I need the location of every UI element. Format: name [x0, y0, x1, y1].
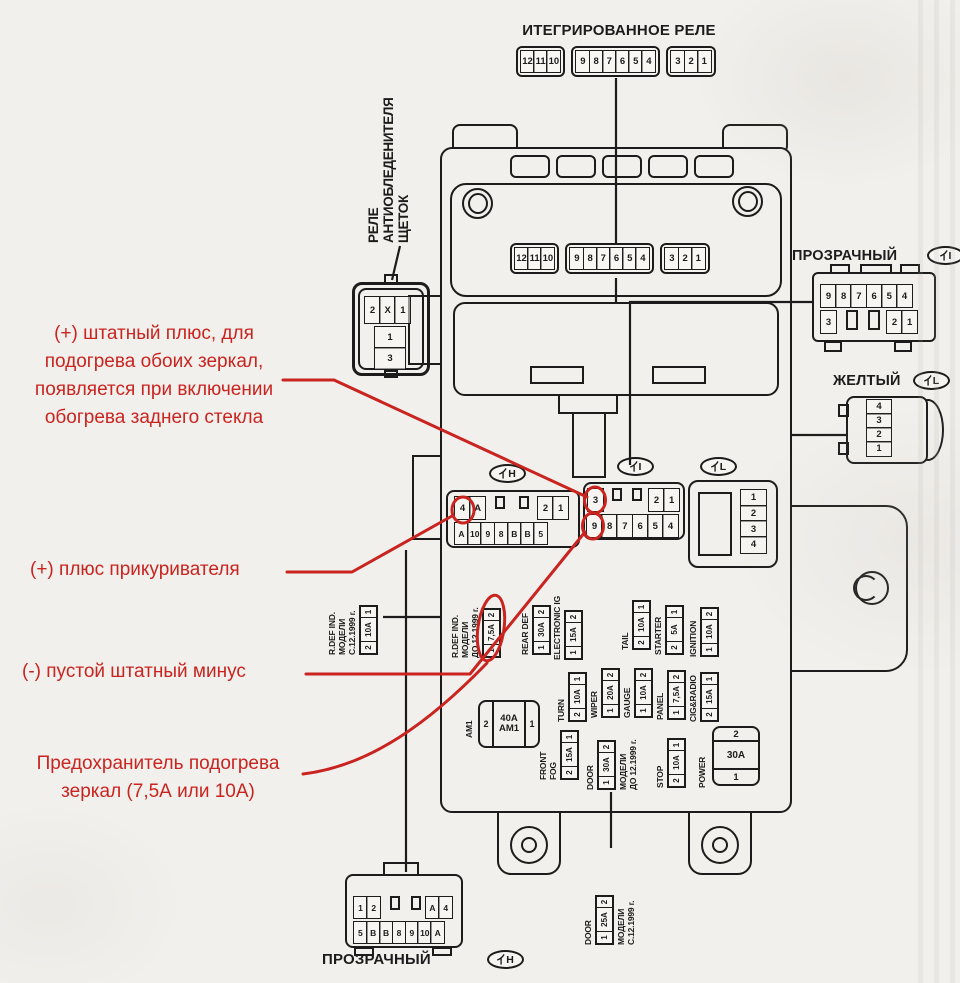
fuse-body: 210A1	[568, 672, 587, 722]
right-clear-foot	[824, 341, 842, 352]
fuse-body: 130A2	[532, 605, 551, 655]
pin-cell: 1	[901, 310, 918, 334]
right-clear-foot	[894, 341, 912, 352]
fuse-door-early: DOOR 130A2 МОДЕЛИ ДО 12.1999 г.	[585, 739, 638, 790]
am1-pin-1: 1	[524, 702, 538, 746]
fuse-cell: 2	[562, 767, 577, 778]
pin-cell: 3	[587, 488, 604, 512]
fuse-cell: 1	[570, 674, 585, 685]
fuse-cell: 2	[534, 607, 549, 618]
tag-letter: L	[933, 375, 939, 387]
fuse-cell: 1	[669, 740, 684, 751]
fuse-cell: 10A	[634, 613, 649, 637]
fuse-cell: 2	[570, 709, 585, 720]
bottom-clear-row2: 5BB8910A	[353, 921, 445, 944]
fuse-cell: 1	[702, 644, 717, 655]
katakana-i-icon	[497, 954, 505, 965]
bottom-clear-keyway	[390, 896, 400, 910]
fuse-body: 25A1	[665, 605, 684, 655]
inner-pin-group: 321	[660, 243, 709, 274]
fuse-label: R.DEF IND. МОДЕЛИ ДО 12.1999 г.	[450, 607, 480, 658]
tag-letter: I	[949, 250, 952, 262]
pin-cell: 1	[691, 247, 706, 270]
fuse-cell: 2	[566, 612, 581, 623]
fuse-cell: 2	[702, 609, 717, 620]
relay-pin-group: 987654	[571, 46, 660, 77]
clear-connector-right-label: ПРОЗРАЧНЫЙ	[792, 248, 897, 264]
ih-row1-right: 21	[537, 496, 569, 520]
right-clear-row1: 987654	[820, 284, 913, 308]
fuse-cell: 1	[566, 647, 581, 658]
am1-rating: 40A AM1	[494, 702, 524, 746]
screw-boss-left-inner	[468, 193, 488, 214]
pin-cell: 4	[662, 514, 679, 538]
top-slot	[556, 155, 596, 178]
pin-cell: 1	[552, 496, 569, 520]
fuse-cell: 1	[669, 707, 684, 718]
fuse-body: 215A1	[560, 730, 579, 780]
fuse-starter: STARTER 25A1	[653, 605, 684, 655]
fuse-cell: 15A	[562, 743, 577, 767]
fuse-label: STOP	[655, 766, 665, 788]
wiper-deicer-relay-label: РЕЛЕ АНТИОБЛЕДЕНИТЕЛЯ ЩЕТОК	[366, 98, 411, 244]
pin-cell: 4	[740, 536, 767, 554]
wiper-relay-tab-bottom	[384, 370, 398, 378]
fuse-cell: 5A	[667, 618, 682, 642]
fuse-note: МОДЕЛИ ДО 12.1999 г.	[618, 739, 638, 790]
fuse-label: IGNITION	[688, 621, 698, 657]
fuse-label: POWER	[697, 757, 707, 788]
ii-row1-left: 3	[587, 488, 604, 512]
pin-cell: 1	[374, 326, 406, 349]
fuse-cell: 10A	[636, 681, 651, 705]
fuse-ignition: IGNITION 110A2	[688, 607, 719, 657]
inner-connector-row: 121110 987654 321	[510, 243, 710, 274]
ii-keyway	[632, 488, 642, 501]
fuse-door-late: DOOR 125A2 МОДЕЛИ C.12.1999 г.	[583, 895, 636, 945]
fuse-label: WIPER	[589, 691, 599, 718]
fuse-cell: 2	[597, 897, 612, 908]
pin-cell: 4	[641, 50, 656, 73]
ih-keyway	[495, 496, 505, 509]
fuse-body: 130A2	[597, 740, 616, 790]
fuse-body: 17,5A2	[482, 608, 501, 658]
fuse-label: TURN	[556, 699, 566, 722]
fuse-cell: 10A	[361, 618, 376, 642]
mount-hole-left-inner	[521, 837, 537, 853]
integrated-relay-label: ИТЕГРИРОВАННОЕ РЕЛЕ	[505, 22, 733, 39]
fuse-body: 110A2	[634, 668, 653, 718]
pin-cell: 1	[394, 296, 411, 324]
bracket-hole-crescent	[853, 575, 879, 601]
pin-cell: 4	[896, 284, 913, 308]
fuse-cell: 30A	[599, 753, 614, 777]
bottom-clear-keyway	[411, 896, 421, 910]
fuse-cell: 1	[361, 607, 376, 618]
fuse-cell: 30A	[534, 618, 549, 642]
pin-cell: 4	[635, 247, 650, 270]
pin-cell: A	[469, 496, 486, 520]
fuse-turn: TURN 210A1	[556, 672, 587, 722]
fuse-label: REAR DEF	[520, 613, 530, 655]
annotation-mirror-heater-fuse: Предохранитель подогрева зеркал (7,5А ил…	[8, 750, 308, 806]
pin-cell: 3	[374, 347, 406, 370]
relay-pin-group: 121110	[516, 46, 565, 77]
pin-cell: 1	[663, 488, 680, 512]
fuse-cell: 2	[669, 672, 684, 683]
tag-letter: H	[508, 468, 516, 480]
fuse-note: МОДЕЛИ C.12.1999 г.	[616, 901, 636, 945]
bottom-clear-label: ПРОЗРАЧНЫЙ	[322, 951, 431, 968]
fuse-cell: 1	[667, 607, 682, 618]
fuse-cell: 15A	[566, 623, 581, 647]
fuse-cell: 2	[669, 775, 684, 786]
fuse-cell: 1	[599, 777, 614, 788]
fuse-label: PANEL	[655, 693, 665, 720]
right-bracket	[790, 505, 908, 672]
wiper-deicer-relay-label-text: РЕЛЕ АНТИОБЛЕДЕНИТЕЛЯ ЩЕТОК	[366, 98, 411, 244]
pin-cell: 2	[366, 896, 381, 919]
katakana-i-icon	[499, 468, 507, 479]
fuse-wiper: WIPER 120A2	[589, 668, 620, 718]
pin-cell: 10	[546, 50, 561, 73]
pin-cell: 4	[438, 896, 453, 919]
power-pin-2: 2	[714, 728, 758, 742]
am1-pin-2: 2	[480, 702, 494, 746]
pin-cell: 5	[533, 522, 548, 545]
left-bracket-lower	[412, 455, 442, 540]
fuse-label: TAIL	[620, 633, 630, 650]
pin-cell: 10	[540, 247, 555, 270]
bottom-clear-foot	[432, 947, 452, 956]
tag-letter: L	[720, 461, 726, 473]
fuse-label: STARTER	[653, 617, 663, 655]
wiper-relay-tab-top	[384, 274, 398, 284]
fuse-cell: 2	[361, 642, 376, 653]
fuse-tail: TAIL 210A1	[620, 600, 651, 650]
fusebox-diagram: ИТЕГРИРОВАННОЕ РЕЛЕ 121110 987654 321 12…	[0, 0, 960, 983]
integrated-relay-connector: 121110 987654 321	[516, 46, 716, 77]
relay-block-bump	[652, 366, 706, 384]
fuse-label: DOOR	[585, 765, 595, 790]
katakana-i-icon	[924, 375, 932, 386]
yellow-tab	[838, 404, 849, 417]
mount-hole-right-inner	[712, 837, 728, 853]
fuse-label: GAUGE	[622, 688, 632, 718]
power-label: POWER	[697, 757, 707, 788]
inner-pin-group: 987654	[565, 243, 654, 274]
tag-bottom-clear: H	[487, 950, 524, 969]
top-slot	[510, 155, 550, 178]
wiper-relay-row1: 2X1	[364, 296, 411, 324]
fuse-cell: 7,5A	[484, 621, 499, 645]
fuse-cell: 1	[597, 932, 612, 943]
fuse-cell: 25A	[597, 908, 612, 932]
ii-row1-right: 21	[648, 488, 680, 512]
il-inner-block	[698, 492, 732, 556]
relay-block-region	[453, 302, 779, 396]
screw-boss-right-inner	[738, 191, 758, 212]
tag-right-clear: I	[927, 246, 960, 265]
pin-cell: 1	[866, 441, 892, 457]
center-tab	[558, 394, 618, 414]
right-clear-keyway	[868, 310, 880, 330]
il-pin-column: 1234	[740, 489, 767, 554]
fuse-electronic-ig: ELECTRONIC IG 115A2	[552, 596, 583, 660]
inner-pin-group: 121110	[510, 243, 559, 274]
pin-cell: 3	[820, 310, 837, 334]
wiper-relay-stack: 13	[374, 326, 406, 370]
tag-il: L	[700, 457, 737, 476]
fuse-label: DOOR	[583, 920, 593, 945]
ih-row2: A1098BB5	[454, 522, 548, 545]
ih-row1-left: 4A	[454, 496, 486, 520]
katakana-i-icon	[711, 461, 719, 472]
annotation-empty-minus: (-) пустой штатный минус	[22, 658, 246, 686]
fuse-stop: STOP 210A1	[655, 738, 686, 788]
fuse-body: 110A2	[700, 607, 719, 657]
top-slot	[694, 155, 734, 178]
yellow-pin-column: 4321	[866, 399, 892, 457]
fuse-cell: 1	[634, 602, 649, 613]
fuse-am1: 2 40A AM1 1	[478, 700, 540, 748]
fuse-front-fog: FRONT FOG 215A1	[538, 730, 579, 780]
fuse-label: CIG&RADIO	[688, 675, 698, 722]
fuse-cell: 1	[636, 705, 651, 716]
fuse-rear-def: REAR DEF 130A2	[520, 605, 551, 655]
fuse-cell: 1	[562, 732, 577, 743]
tag-yellow: L	[913, 371, 950, 390]
fuse-cell: 10A	[570, 685, 585, 709]
fuse-cell: 7,5A	[669, 683, 684, 707]
fuse-cig-radio: CIG&RADIO 215A1	[688, 672, 719, 722]
fuse-body: 215A1	[700, 672, 719, 722]
fuse-power: 2 30A 1	[712, 726, 760, 786]
relay-pin-group: 321	[666, 46, 715, 77]
right-clear-row2-right: 21	[886, 310, 918, 334]
fuse-cell: 2	[603, 670, 618, 681]
fuse-rdef-models-late-outer: R.DEF IND. МОДЕЛИ C.12.1999 г. 210A1	[327, 605, 378, 655]
fuse-cell: 20A	[603, 681, 618, 705]
fuse-cell: 1	[484, 645, 499, 656]
katakana-i-icon	[940, 250, 948, 261]
ii-keyway	[612, 488, 622, 501]
fuse-label: AM1	[464, 721, 474, 738]
tag-letter: H	[506, 954, 514, 966]
yellow-connector-label: ЖЕЛТЫЙ	[833, 373, 901, 389]
fuse-body: 115A2	[564, 610, 583, 660]
fuse-cell: 2	[599, 742, 614, 753]
fuse-body: 125A2	[595, 895, 614, 945]
fuse-cell: 1	[603, 705, 618, 716]
bottom-clear-row1-right: A4	[425, 896, 453, 919]
am1-label: AM1	[464, 721, 474, 738]
fuse-gauge: GAUGE 110A2	[622, 668, 653, 718]
fuse-body: 210A1	[359, 605, 378, 655]
top-slot	[648, 155, 688, 178]
bottom-clear-row1-left: 12	[353, 896, 381, 919]
fuse-label: R.DEF IND. МОДЕЛИ C.12.1999 г.	[327, 611, 357, 655]
fuse-cell: 2	[702, 709, 717, 720]
top-slot	[602, 155, 642, 178]
tag-ii: I	[617, 457, 654, 476]
fuse-cell: 1	[702, 674, 717, 685]
tag-letter: I	[639, 461, 642, 473]
fuse-label: FRONT FOG	[538, 752, 558, 780]
annotation-heated-mirrors-plus: (+) штатный плюс, для подогрева обоих зе…	[2, 320, 306, 432]
fuse-body: 210A1	[632, 600, 651, 650]
right-clear-row2-left: 3	[820, 310, 837, 334]
fuse-rdef-models-early: R.DEF IND. МОДЕЛИ ДО 12.1999 г. 17,5A2	[450, 607, 501, 658]
fuse-body: 17,5A2	[667, 670, 686, 720]
fuse-body: 210A1	[667, 738, 686, 788]
ii-row2: 987654	[586, 514, 679, 538]
power-rating: 30A	[714, 742, 758, 768]
fuse-cell: 2	[636, 670, 651, 681]
ih-keyway	[519, 496, 529, 509]
fuse-panel: PANEL 17,5A2	[655, 670, 686, 720]
relay-block-bump	[530, 366, 584, 384]
fuse-cell: 2	[667, 642, 682, 653]
fuse-cell: 10A	[702, 620, 717, 644]
fuse-cell: 1	[534, 642, 549, 653]
katakana-i-icon	[630, 461, 638, 472]
right-clear-keyway	[846, 310, 858, 330]
fuse-cell: 2	[634, 637, 649, 648]
pin-cell: A	[430, 921, 445, 944]
yellow-tab	[838, 442, 849, 455]
fuse-body: 120A2	[601, 668, 620, 718]
tag-ih: H	[489, 464, 526, 483]
scan-stripes	[918, 0, 960, 983]
center-tab-stem	[572, 412, 606, 478]
fuse-cell: 2	[484, 610, 499, 621]
fuse-cell: 10A	[669, 751, 684, 775]
power-pin-1: 1	[714, 768, 758, 784]
pin-cell: 1	[697, 50, 712, 73]
fuse-label: ELECTRONIC IG	[552, 596, 562, 660]
annotation-lighter-plus: (+) плюс прикуривателя	[30, 556, 240, 584]
fuse-cell: 15A	[702, 685, 717, 709]
